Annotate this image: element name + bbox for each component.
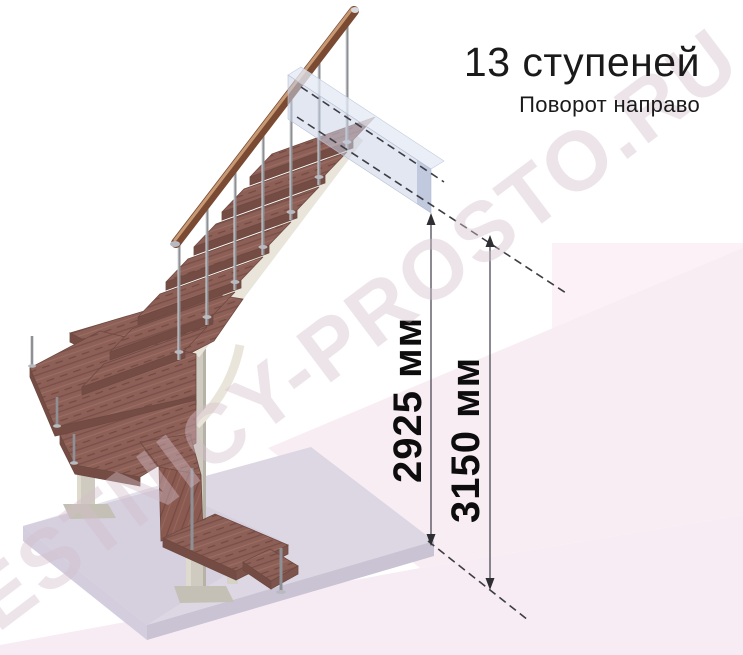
page-title: 13 ступеней bbox=[464, 42, 700, 83]
staircase-diagram: 2925 мм 3150 мм LESTNICY-PROSTO.RU 13 ст… bbox=[0, 0, 743, 655]
dimension-outer-label: 3150 мм bbox=[444, 357, 488, 523]
title-block: 13 ступеней Поворот направо bbox=[464, 42, 700, 118]
page-subtitle: Поворот направо bbox=[464, 92, 700, 118]
